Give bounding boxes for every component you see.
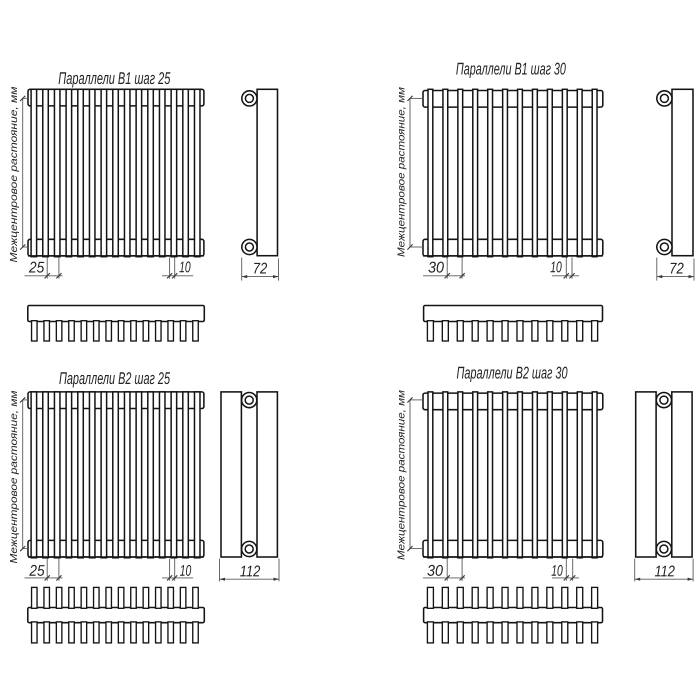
svg-text:72: 72 <box>253 260 268 277</box>
svg-text:10: 10 <box>180 563 192 580</box>
svg-text:112: 112 <box>654 563 675 580</box>
svg-text:30: 30 <box>428 259 444 276</box>
svg-text:Межцентровое растояние, мм: Межцентровое растояние, мм <box>9 391 20 564</box>
svg-text:10: 10 <box>551 563 563 580</box>
svg-text:Межцентровое растояние, мм: Межцентровое растояние, мм <box>396 87 407 257</box>
svg-text:10: 10 <box>550 259 562 276</box>
svg-text:25: 25 <box>29 563 45 580</box>
svg-text:112: 112 <box>240 563 261 580</box>
svg-text:Параллели В2 шаг 30: Параллели В2 шаг 30 <box>456 363 567 382</box>
svg-text:Параллели В2 шаг 25: Параллели В2 шаг 25 <box>59 369 170 388</box>
svg-text:Параллели В1 шаг 25: Параллели В1 шаг 25 <box>58 69 170 88</box>
svg-text:Межцентровое растояние, мм: Межцентровое растояние, мм <box>9 87 20 263</box>
svg-text:72: 72 <box>669 260 684 277</box>
svg-text:10: 10 <box>179 259 191 276</box>
svg-text:25: 25 <box>28 259 44 276</box>
svg-text:Межцентровое растояние, мм: Межцентровое растояние, мм <box>396 390 407 560</box>
svg-text:Параллели В1 шаг 30: Параллели В1 шаг 30 <box>456 59 566 78</box>
svg-text:30: 30 <box>427 563 443 580</box>
